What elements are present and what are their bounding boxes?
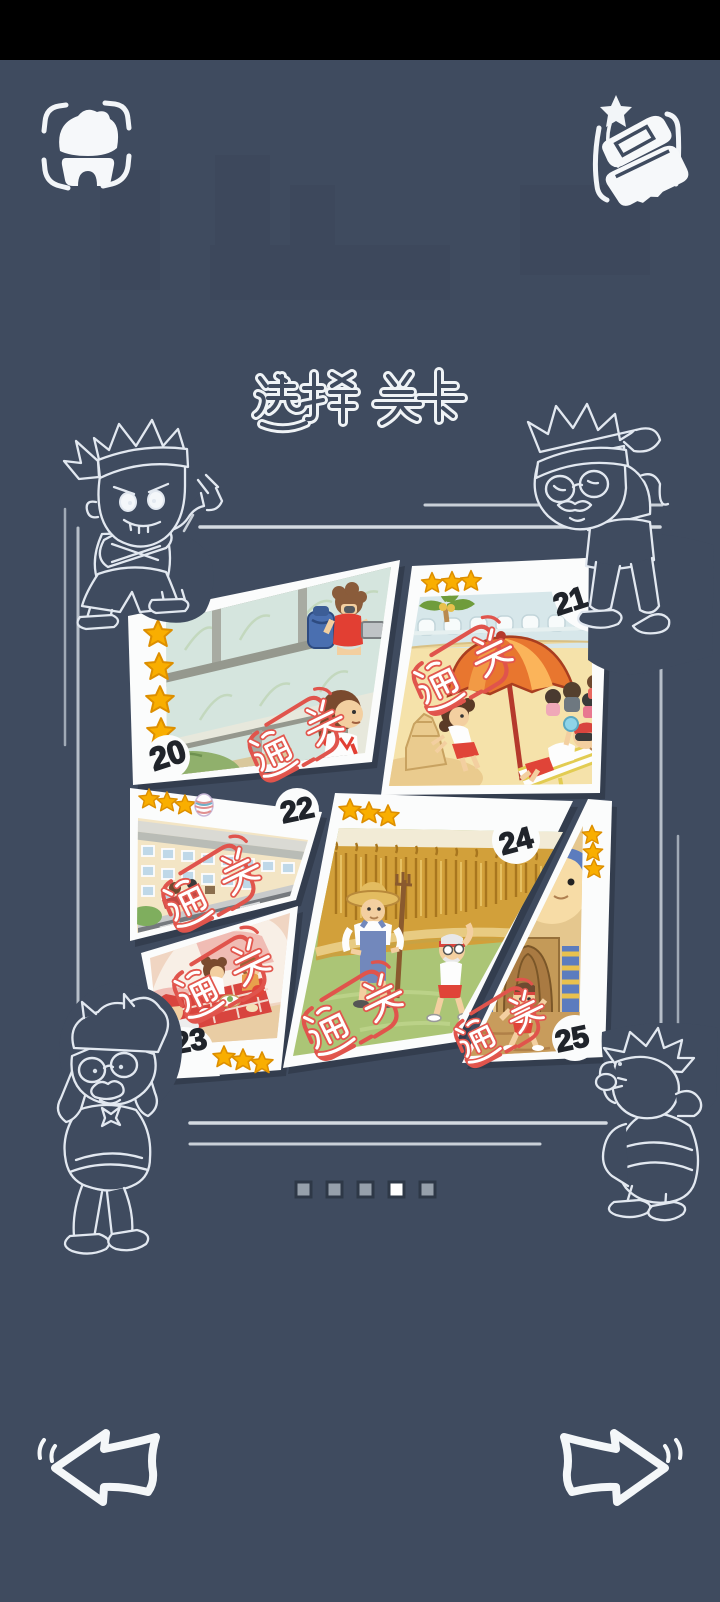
svg-text:22: 22 bbox=[278, 791, 318, 830]
svg-text:25: 25 bbox=[552, 1020, 592, 1059]
